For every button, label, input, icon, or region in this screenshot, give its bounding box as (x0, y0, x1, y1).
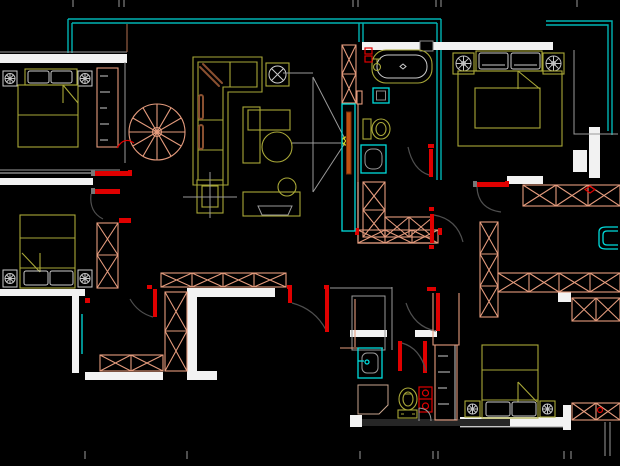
bedroom-bottom-right (465, 345, 555, 418)
bathroom-top (361, 48, 432, 173)
door-swing (287, 285, 329, 332)
cad-canvas[interactable] (0, 0, 620, 466)
red-marker-circle (598, 408, 603, 413)
ceiling-fixture-icon (266, 63, 289, 86)
pillow (50, 271, 73, 285)
door-gap (420, 41, 433, 51)
lamp-icon (456, 56, 471, 71)
bedroom-left (3, 215, 92, 288)
pillow (51, 71, 72, 83)
hatch-band-center (355, 228, 442, 243)
bed (18, 85, 78, 147)
bedroom-top-left (3, 69, 92, 147)
hatch-L-wall-center (358, 182, 437, 243)
door-swing (408, 144, 434, 177)
pillow (24, 271, 48, 285)
hatch-band-topright (523, 185, 620, 206)
corner-sofa (193, 57, 262, 185)
kitchen-sink (599, 227, 618, 249)
hatch-band-se-top (572, 298, 620, 321)
lamp-icon (5, 274, 15, 284)
pillow (511, 53, 540, 69)
door-swing (91, 170, 132, 223)
door-swing (473, 181, 509, 212)
wardrobe-top-left (97, 68, 118, 147)
utility-room-right (599, 227, 618, 249)
hatch-band-right (498, 273, 620, 292)
hatch-band-se-bottom (572, 403, 620, 420)
door-panel (347, 112, 352, 174)
door-swing (130, 285, 157, 317)
hatch-column-right (480, 222, 498, 317)
hatch-bath-column (342, 45, 356, 103)
pillow (28, 71, 49, 83)
door-swing (406, 287, 459, 345)
tv-cabinet (243, 178, 300, 216)
lamp-icon (5, 74, 15, 84)
hatch-band-hall (161, 273, 286, 287)
red-marker (85, 298, 90, 303)
bathtub (365, 48, 432, 83)
living-room (183, 57, 350, 218)
wall-lines-grey (0, 24, 618, 456)
hatch-column-hall (165, 292, 187, 371)
floor-plan-drawing (0, 0, 620, 466)
pillow (512, 402, 536, 416)
elevation-sight-lines (283, 73, 345, 192)
bed (458, 71, 562, 146)
wash-basin (361, 145, 386, 173)
floor-drain (373, 88, 389, 103)
pillow (486, 402, 510, 416)
lamp-icon (468, 404, 478, 414)
tv (258, 206, 292, 215)
toilet (363, 119, 390, 139)
shower (358, 385, 388, 414)
coffee-table (243, 107, 292, 163)
hatch-band-bottomleft (100, 355, 163, 371)
hatch-column-left (97, 223, 118, 288)
bedroom-top-right (453, 51, 564, 146)
lamp-icon (546, 56, 561, 71)
bed-headboard (476, 51, 542, 71)
side-table (183, 172, 237, 218)
sliding-door (342, 91, 362, 231)
lamp-icon (80, 274, 90, 284)
red-marker-diamond (585, 186, 595, 193)
spiral-staircase (117, 104, 185, 160)
pillow (479, 53, 508, 69)
lamp-icon (543, 404, 553, 414)
wardrobe-bottom (435, 345, 457, 420)
walls-white (0, 41, 600, 430)
door-swing (397, 341, 427, 374)
wash-basin (358, 348, 382, 378)
lamp-icon (80, 74, 90, 84)
toilet (398, 388, 417, 418)
